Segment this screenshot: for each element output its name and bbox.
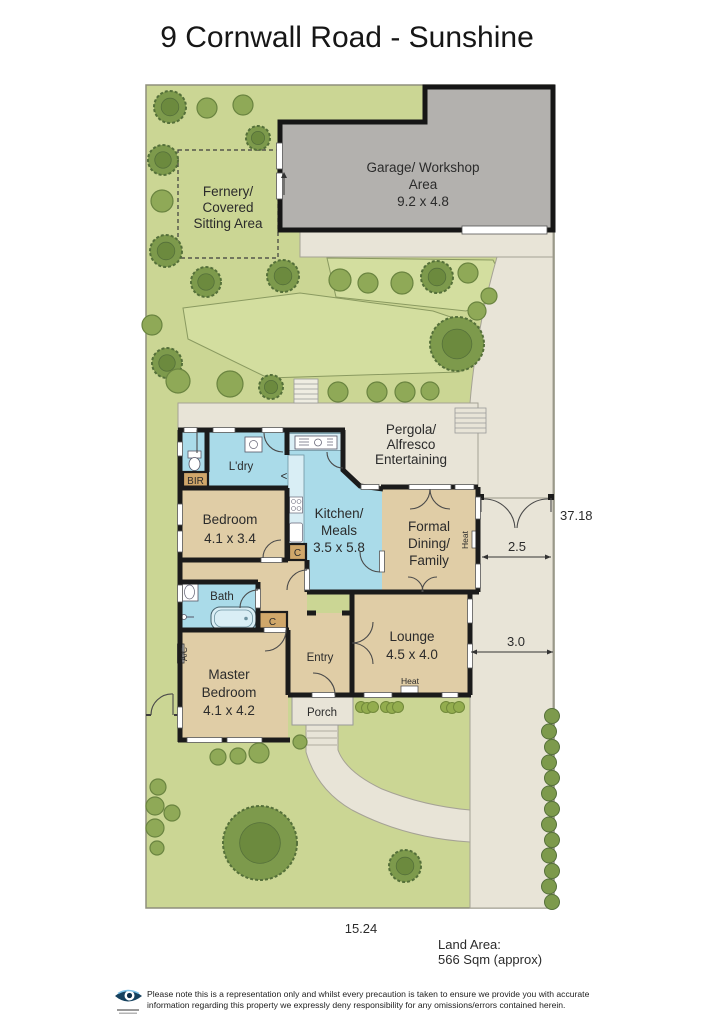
- dim-boundary-right: 37.18: [560, 508, 593, 523]
- tree-icon: [249, 743, 269, 763]
- svg-text:Bedroom: Bedroom: [202, 685, 257, 700]
- svg-text:Dining/: Dining/: [408, 536, 450, 551]
- svg-text:2.5: 2.5: [508, 539, 526, 554]
- bath-label: Bath: [210, 591, 234, 603]
- tree-icon: [442, 329, 472, 359]
- svg-text:Entertaining: Entertaining: [375, 452, 447, 467]
- heat-dining-label: Heat: [460, 530, 470, 549]
- stairs-pergola: [455, 408, 486, 433]
- closet-hall-label: C: [269, 617, 276, 628]
- floorplan-canvas: 9 Cornwall Road - Sunshine Garage/ Works…: [0, 0, 720, 1024]
- svg-text:Lounge: Lounge: [389, 629, 434, 644]
- svg-text:Master: Master: [208, 667, 250, 682]
- tree-icon: [293, 735, 307, 749]
- svg-text:4.5 x 4.0: 4.5 x 4.0: [386, 647, 438, 662]
- tree-icon: [393, 702, 404, 713]
- vanity-icon: [181, 583, 198, 601]
- svg-text:Covered: Covered: [202, 200, 253, 215]
- tree-icon: [233, 95, 253, 115]
- tree-icon: [210, 749, 226, 765]
- tree-icon: [142, 315, 162, 335]
- fridge-marker: <: [281, 471, 288, 483]
- tree-icon: [542, 848, 557, 863]
- svg-text:9.2 x 4.8: 9.2 x 4.8: [397, 194, 449, 209]
- svg-text:Garage/ Workshop: Garage/ Workshop: [366, 160, 479, 175]
- heater-lounge-icon: [401, 686, 418, 693]
- tree-icon: [468, 302, 486, 320]
- tree-icon: [161, 98, 179, 116]
- tree-icon: [542, 817, 557, 832]
- kitchen-sink-icon: [290, 523, 303, 542]
- svg-text:4.1 x 4.2: 4.1 x 4.2: [203, 703, 255, 718]
- tree-icon: [421, 382, 439, 400]
- svg-text:4.1 x 3.4: 4.1 x 3.4: [204, 531, 256, 546]
- bathtub-icon: [211, 607, 256, 630]
- disclaimer-line-2: information regarding this property we e…: [147, 1000, 565, 1010]
- tree-icon: [454, 702, 465, 713]
- tree-icon: [240, 823, 281, 864]
- tree-icon: [542, 786, 557, 801]
- svg-text:Pergola/: Pergola/: [386, 422, 437, 437]
- heat-lounge-label: Heat: [401, 676, 420, 686]
- svg-text:3.5 x 5.8: 3.5 x 5.8: [313, 540, 365, 555]
- svg-text:Kitchen/: Kitchen/: [315, 506, 364, 521]
- cooktop-icon: [290, 497, 303, 513]
- svg-text:Land Area:: Land Area:: [438, 937, 501, 952]
- tree-icon: [159, 355, 176, 372]
- stairs-lawn: [294, 379, 318, 403]
- land-area: Land Area: 566 Sqm (approx): [438, 937, 542, 967]
- tree-icon: [251, 131, 264, 144]
- tree-icon: [164, 805, 180, 821]
- tree-icon: [396, 857, 414, 875]
- svg-text:3.0: 3.0: [507, 634, 525, 649]
- laundry-label: L'dry: [229, 461, 254, 473]
- svg-text:Sitting Area: Sitting Area: [193, 216, 263, 231]
- tree-icon: [329, 269, 351, 291]
- tree-icon: [391, 272, 413, 294]
- toilet-icon: [188, 451, 201, 471]
- dim-frontage: 15.24: [345, 921, 378, 936]
- paving-behind-garage: [300, 232, 553, 257]
- tree-icon: [367, 382, 387, 402]
- closet-kitchen-label: C: [294, 548, 301, 559]
- disclaimer-line-1: Please note this is a representation onl…: [147, 989, 590, 999]
- tree-icon: [545, 802, 560, 817]
- svg-text:Bedroom: Bedroom: [203, 512, 258, 527]
- agency-logo-icon: [115, 991, 142, 1015]
- bir-label: BIR: [187, 476, 204, 487]
- tree-icon: [545, 771, 560, 786]
- ac-label: A/C: [179, 647, 189, 661]
- tree-icon: [157, 242, 175, 260]
- stove-icon: [295, 436, 337, 449]
- svg-text:566 Sqm (approx): 566 Sqm (approx): [438, 952, 542, 967]
- tree-icon: [155, 152, 172, 169]
- svg-text:Formal: Formal: [408, 519, 450, 534]
- tree-icon: [395, 382, 415, 402]
- tree-icon: [264, 380, 277, 393]
- svg-text:Area: Area: [409, 177, 438, 192]
- tree-icon: [481, 288, 497, 304]
- tree-icon: [542, 724, 557, 739]
- entry-label: Entry: [307, 652, 334, 664]
- tree-icon: [428, 268, 446, 286]
- tree-icon: [358, 273, 378, 293]
- tree-icon: [166, 369, 190, 393]
- tree-icon: [545, 864, 560, 879]
- tree-icon: [146, 797, 164, 815]
- laundry-trough-icon: [245, 437, 262, 452]
- tree-icon: [368, 702, 379, 713]
- tree-icon: [198, 274, 215, 291]
- tree-icon: [150, 841, 164, 855]
- footer: Please note this is a representation onl…: [115, 989, 590, 1014]
- tree-icon: [146, 819, 164, 837]
- tree-icon: [151, 190, 173, 212]
- tree-icon: [230, 748, 246, 764]
- svg-text:Alfresco: Alfresco: [387, 437, 436, 452]
- tree-icon: [542, 755, 557, 770]
- tree-icon: [197, 98, 217, 118]
- svg-text:Fernery/: Fernery/: [203, 184, 254, 199]
- page-title: 9 Cornwall Road - Sunshine: [160, 21, 534, 54]
- tree-icon: [274, 267, 292, 285]
- tree-icon: [545, 895, 560, 910]
- master-label: Master Bedroom 4.1 x 4.2: [202, 667, 257, 718]
- garage-door: [462, 226, 547, 234]
- tree-icon: [545, 740, 560, 755]
- tree-icon: [545, 833, 560, 848]
- tree-icon: [150, 779, 166, 795]
- dining-label: Formal Dining/ Family: [408, 519, 450, 568]
- tree-icon: [542, 879, 557, 894]
- tree-icon: [217, 371, 243, 397]
- tree-icon: [458, 263, 478, 283]
- svg-text:Family: Family: [409, 553, 449, 568]
- tree-icon: [328, 382, 348, 402]
- fernery-label: Fernery/ Covered Sitting Area: [193, 184, 263, 231]
- tree-icon: [545, 709, 560, 724]
- porch-label: Porch: [307, 707, 337, 719]
- svg-text:Meals: Meals: [321, 523, 357, 538]
